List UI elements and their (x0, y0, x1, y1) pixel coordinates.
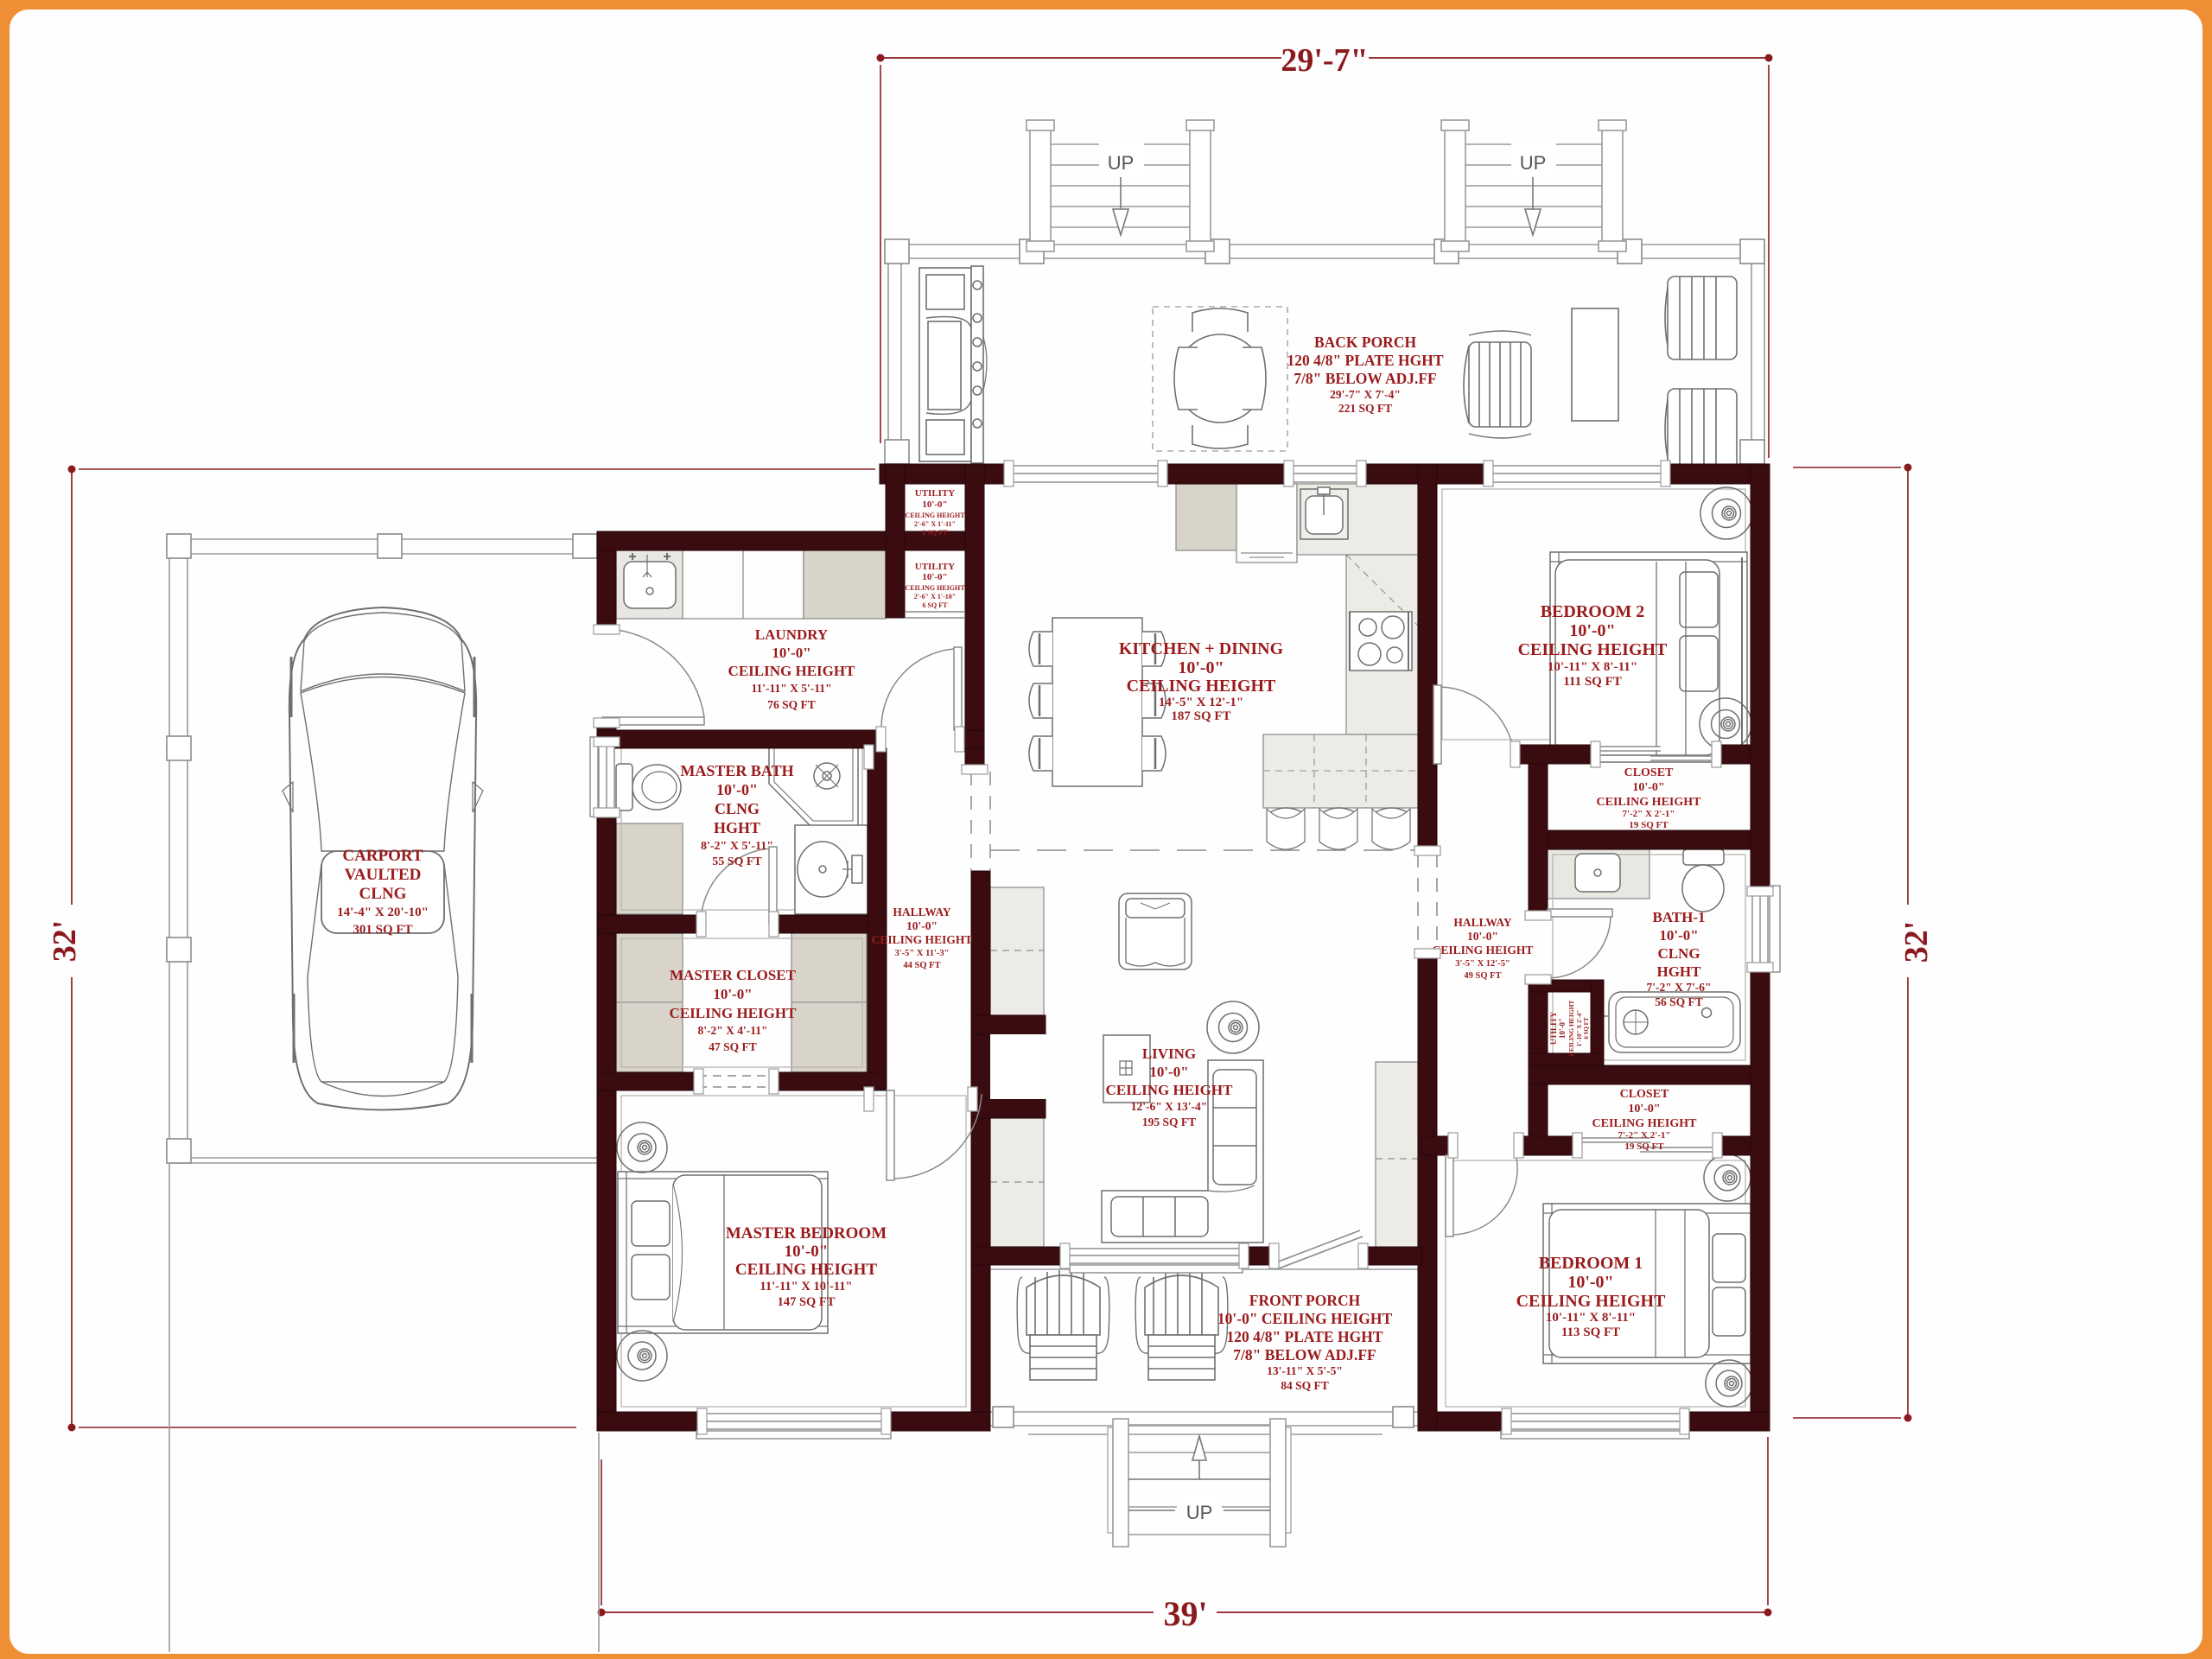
svg-text:LAUNDRY: LAUNDRY (755, 626, 828, 643)
svg-text:CLOSET: CLOSET (1620, 1088, 1669, 1101)
svg-text:CEILING HEIGHT: CEILING HEIGHT (1127, 677, 1276, 696)
svg-text:UP: UP (1520, 152, 1547, 174)
svg-text:HGHT: HGHT (714, 819, 760, 836)
svg-text:CLNG: CLNG (1657, 945, 1700, 962)
svg-text:10'-0": 10'-0" (713, 986, 752, 1002)
svg-text:CEILING HEIGHT: CEILING HEIGHT (1433, 944, 1534, 957)
svg-text:3'-5" X 11'-3": 3'-5" X 11'-3" (895, 949, 950, 958)
svg-text:FRONT PORCH: FRONT PORCH (1249, 1292, 1361, 1309)
svg-text:221 SQ FT: 221 SQ FT (1338, 402, 1392, 415)
svg-text:11'-11" X 5'-11": 11'-11" X 5'-11" (752, 682, 832, 695)
svg-text:29'-7" X 7'-4": 29'-7" X 7'-4" (1330, 388, 1401, 401)
svg-text:CEILING HEIGHT: CEILING HEIGHT (905, 584, 965, 592)
svg-text:7'-2" X 7'-6": 7'-2" X 7'-6" (1647, 981, 1712, 994)
svg-text:BACK PORCH: BACK PORCH (1314, 334, 1417, 351)
svg-text:13'-11" X 5'-5": 13'-11" X 5'-5" (1267, 1364, 1343, 1377)
svg-text:120 4/8" PLATE HGHT: 120 4/8" PLATE HGHT (1287, 352, 1443, 369)
svg-text:7/8" BELOW ADJ.FF: 7/8" BELOW ADJ.FF (1233, 1346, 1376, 1363)
svg-text:10'-11" X 8'-11": 10'-11" X 8'-11" (1546, 1311, 1636, 1325)
svg-text:7/8" BELOW ADJ.FF: 7/8" BELOW ADJ.FF (1294, 370, 1436, 387)
svg-text:CLNG: CLNG (715, 800, 760, 817)
svg-text:12'-6" X 13'-4": 12'-6" X 13'-4" (1131, 1100, 1207, 1113)
svg-text:47 SQ FT: 47 SQ FT (709, 1040, 757, 1053)
svg-text:UTILITY: UTILITY (915, 488, 956, 499)
svg-text:6 SQ FT: 6 SQ FT (1583, 1017, 1590, 1039)
svg-text:10'-0": 10'-0" (1659, 927, 1698, 944)
svg-text:CEILING HEIGHT: CEILING HEIGHT (1516, 1292, 1666, 1311)
svg-text:UP: UP (1186, 1502, 1213, 1523)
svg-text:CEILING HEIGHT: CEILING HEIGHT (1592, 1117, 1698, 1130)
svg-text:BATH-1: BATH-1 (1652, 909, 1705, 925)
svg-text:10'-0" CEILING HEIGHT: 10'-0" CEILING HEIGHT (1217, 1310, 1393, 1327)
svg-text:MASTER BATH: MASTER BATH (680, 762, 793, 779)
svg-text:76 SQ FT: 76 SQ FT (767, 698, 816, 711)
svg-text:10'-0": 10'-0" (1628, 1103, 1660, 1116)
svg-text:8'-2" X 4'-11": 8'-2" X 4'-11" (698, 1024, 768, 1037)
svg-text:14'-5" X 12'-1": 14'-5" X 12'-1" (1159, 696, 1243, 709)
svg-text:UTILITY: UTILITY (915, 562, 956, 572)
svg-text:10'-0": 10'-0" (1149, 1064, 1188, 1080)
svg-text:CEILING HEIGHT: CEILING HEIGHT (735, 1261, 878, 1279)
svg-text:VAULTED: VAULTED (345, 866, 422, 884)
svg-text:BEDROOM 1: BEDROOM 1 (1539, 1254, 1643, 1273)
svg-text:8 SQ FT: 8 SQ FT (923, 529, 949, 537)
svg-text:2'-6" X 1'-11": 2'-6" X 1'-11" (914, 520, 956, 528)
svg-text:BEDROOM 2: BEDROOM 2 (1541, 602, 1645, 621)
svg-text:19 SQ FT: 19 SQ FT (1624, 1141, 1664, 1152)
svg-text:CEILING HEIGHT: CEILING HEIGHT (872, 933, 973, 946)
svg-text:301 SQ FT: 301 SQ FT (353, 923, 412, 937)
svg-text:1'-10" X 2'-4": 1'-10" X 2'-4" (1576, 1010, 1583, 1046)
svg-text:10'-0": 10'-0" (1467, 930, 1498, 943)
svg-text:29'-7": 29'-7" (1281, 42, 1368, 79)
svg-text:14'-4" X 20'-10": 14'-4" X 20'-10" (337, 906, 429, 919)
svg-text:39': 39' (1163, 1594, 1207, 1633)
svg-text:10'-0": 10'-0" (1569, 621, 1615, 640)
svg-text:UP: UP (1108, 152, 1135, 174)
svg-text:32': 32' (47, 920, 83, 963)
svg-text:10'-0": 10'-0" (922, 499, 947, 510)
svg-text:11'-11" X 10'-11": 11'-11" X 10'-11" (760, 1280, 852, 1294)
svg-text:8'-2" X 5'-11": 8'-2" X 5'-11" (701, 840, 773, 853)
svg-text:10'-0": 10'-0" (1558, 1018, 1567, 1039)
svg-text:10'-11" X 8'-11": 10'-11" X 8'-11" (1548, 660, 1637, 674)
svg-text:120 4/8" PLATE HGHT: 120 4/8" PLATE HGHT (1226, 1328, 1382, 1345)
svg-text:7'-2" X 2'-1": 7'-2" X 2'-1" (1622, 809, 1675, 819)
svg-text:187 SQ FT: 187 SQ FT (1171, 709, 1230, 723)
svg-text:32': 32' (1898, 921, 1935, 963)
svg-text:CLOSET: CLOSET (1624, 766, 1674, 779)
svg-text:HALLWAY: HALLWAY (1453, 916, 1512, 929)
svg-text:84 SQ FT: 84 SQ FT (1281, 1379, 1329, 1392)
svg-text:10'-0": 10'-0" (922, 572, 947, 582)
svg-text:CEILING HEIGHT: CEILING HEIGHT (728, 663, 856, 679)
svg-text:10'-0": 10'-0" (906, 919, 938, 932)
svg-text:CARPORT: CARPORT (342, 847, 423, 865)
svg-text:CEILING HEIGHT: CEILING HEIGHT (670, 1005, 798, 1021)
svg-text:6 SQ FT: 6 SQ FT (923, 601, 949, 609)
svg-text:113 SQ FT: 113 SQ FT (1561, 1325, 1620, 1339)
svg-text:111 SQ FT: 111 SQ FT (1563, 675, 1622, 689)
svg-text:10'-0": 10'-0" (785, 1243, 829, 1261)
svg-text:10'-0": 10'-0" (1178, 658, 1224, 677)
svg-text:44 SQ FT: 44 SQ FT (903, 961, 940, 970)
svg-text:KITCHEN + DINING: KITCHEN + DINING (1119, 639, 1284, 658)
svg-text:10'-0": 10'-0" (772, 645, 810, 661)
svg-text:HGHT: HGHT (1656, 963, 1701, 980)
svg-text:CEILING HEIGHT: CEILING HEIGHT (1106, 1082, 1234, 1098)
svg-text:10'-0": 10'-0" (716, 781, 758, 798)
svg-text:HALLWAY: HALLWAY (893, 906, 951, 918)
svg-text:7'-2" X 2'-1": 7'-2" X 2'-1" (1618, 1130, 1670, 1141)
svg-text:CEILING HEIGHT: CEILING HEIGHT (905, 512, 965, 519)
svg-text:147 SQ FT: 147 SQ FT (778, 1295, 836, 1309)
svg-text:UTILITY: UTILITY (1549, 1011, 1558, 1045)
svg-text:19 SQ FT: 19 SQ FT (1629, 820, 1669, 830)
svg-text:10'-0": 10'-0" (1632, 781, 1664, 794)
svg-text:2'-6" X 1'-10": 2'-6" X 1'-10" (914, 593, 956, 601)
svg-text:3'-5" X 12'-5": 3'-5" X 12'-5" (1455, 959, 1510, 969)
svg-text:MASTER BEDROOM: MASTER BEDROOM (726, 1224, 887, 1243)
svg-text:49 SQ FT: 49 SQ FT (1464, 971, 1501, 981)
svg-text:55 SQ FT: 55 SQ FT (712, 855, 762, 868)
svg-text:195 SQ FT: 195 SQ FT (1142, 1116, 1196, 1128)
svg-text:56 SQ FT: 56 SQ FT (1655, 995, 1703, 1008)
svg-text:MASTER CLOSET: MASTER CLOSET (670, 967, 797, 983)
svg-text:CEILING HEIGHT: CEILING HEIGHT (1518, 640, 1668, 659)
svg-text:CEILING HEIGHT: CEILING HEIGHT (1567, 1001, 1575, 1057)
svg-text:CLNG: CLNG (359, 885, 407, 903)
svg-text:10'-0": 10'-0" (1567, 1273, 1613, 1292)
svg-text:LIVING: LIVING (1142, 1046, 1196, 1062)
svg-text:CEILING HEIGHT: CEILING HEIGHT (1597, 796, 1702, 809)
